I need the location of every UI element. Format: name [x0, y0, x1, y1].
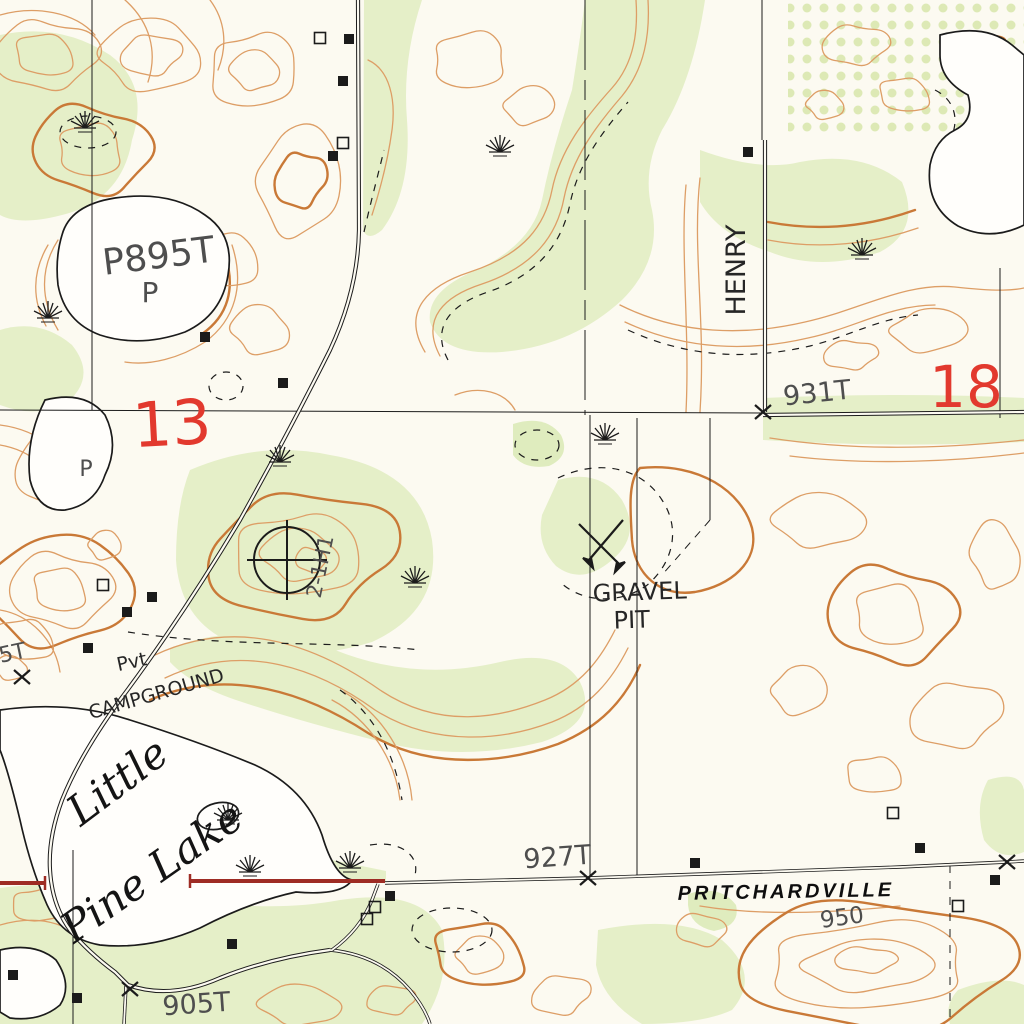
section-number-18: 18 — [929, 353, 1003, 421]
building-square — [915, 843, 925, 853]
building-square — [743, 147, 753, 157]
building-square — [690, 858, 700, 868]
spot-elevation-927: 927T — [522, 840, 593, 876]
building-square — [385, 891, 395, 901]
section-number-13: 13 — [131, 385, 214, 462]
building-square — [990, 875, 1000, 885]
building-square — [83, 643, 93, 653]
building-square — [122, 607, 132, 617]
building-square — [344, 34, 354, 44]
topo-map: P895TPP1318HENRY931TGRAVELPIT2-1H1PvtCAM… — [0, 0, 1024, 1024]
building-square — [227, 939, 237, 949]
spot-elevation-905: 905T — [161, 987, 232, 1023]
building-square — [278, 378, 288, 388]
pond-letter-p: P — [79, 457, 92, 482]
building-square — [328, 151, 338, 161]
gravel-pit-label-line2: PIT — [613, 605, 651, 634]
town-name-pritchardville: PRITCHARDVILLE — [677, 879, 894, 905]
building-square — [72, 993, 82, 1003]
lake-elevation-895-p: P — [142, 276, 159, 309]
building-square — [8, 970, 18, 980]
topo-map-canvas: P895TPP1318HENRY931TGRAVELPIT2-1H1PvtCAM… — [0, 0, 1024, 1024]
building-square — [200, 332, 210, 342]
building-square — [338, 76, 348, 86]
building-square — [147, 592, 157, 602]
gravel-pit-label-line1: GRAVEL — [592, 576, 688, 607]
road-name-henry: HENRY — [721, 224, 752, 316]
